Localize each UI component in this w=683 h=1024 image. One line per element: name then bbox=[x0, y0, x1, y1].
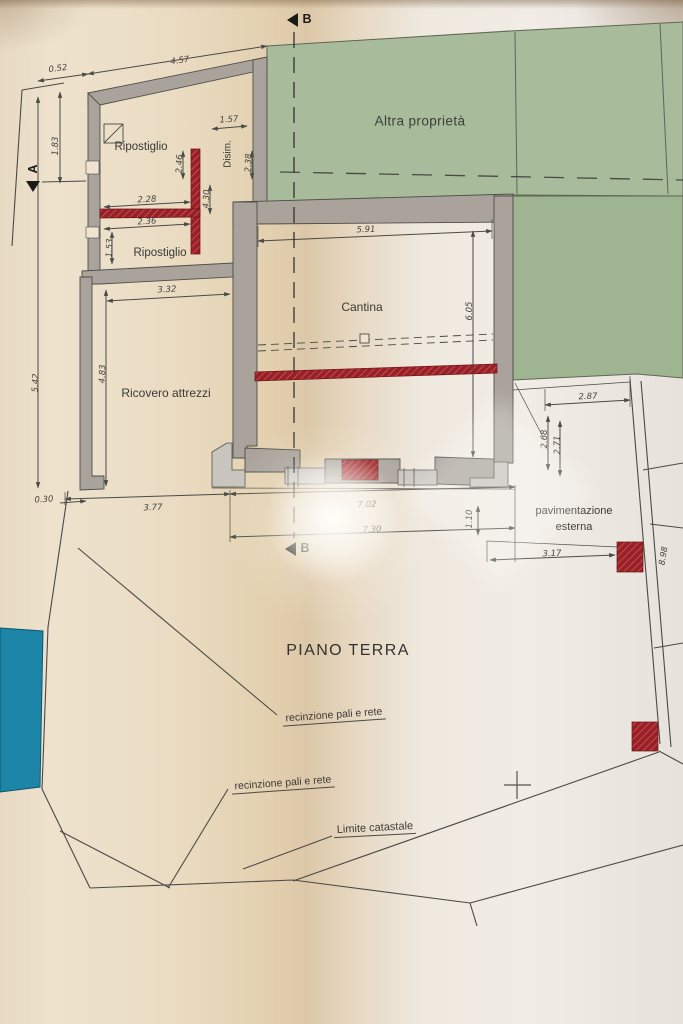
wall-cantina-left bbox=[233, 202, 257, 458]
dim-3-17: 3.17 bbox=[542, 549, 561, 560]
teal-rectangle bbox=[0, 628, 43, 792]
dim-1-57: 1.57 bbox=[219, 114, 239, 125]
bottom-boundary bbox=[90, 880, 470, 903]
dim-2-87: 2.87 bbox=[578, 392, 597, 403]
paving-line-1: pavimentazione bbox=[535, 505, 612, 517]
cadastral-diagonal bbox=[293, 752, 659, 881]
dim-2-68: 2.68 bbox=[540, 430, 550, 449]
wall-left-ricovero bbox=[80, 277, 104, 490]
cantina-small-square bbox=[360, 334, 369, 343]
red-door-block bbox=[342, 460, 378, 480]
dim-2-46: 2.46 bbox=[175, 154, 186, 173]
page-title: PIANO TERRA bbox=[286, 642, 410, 660]
dim-2-38: 2.38 bbox=[244, 153, 255, 172]
dim-0-30: 0.30 bbox=[34, 495, 53, 506]
section-b-top-arrow bbox=[287, 13, 298, 27]
area-label-paving: pavimentazioneesterna bbox=[535, 504, 612, 536]
dim-1-53: 1.53 bbox=[105, 238, 116, 257]
limite-leader bbox=[243, 836, 332, 869]
section-marker-a: A bbox=[26, 164, 40, 173]
survey-cross bbox=[504, 771, 531, 799]
dim-3-77: 3.77 bbox=[143, 503, 162, 514]
cantina-dashed-line-2 bbox=[258, 340, 493, 351]
dim-7-30: 7.30 bbox=[362, 525, 381, 536]
wall-cantina-right bbox=[494, 196, 513, 463]
area-label-other-property: Altra proprietà bbox=[375, 114, 466, 129]
dim-2-28: 2.28 bbox=[137, 195, 156, 206]
wall-left-a bbox=[88, 93, 100, 277]
dim-5-91: 5.91 bbox=[356, 225, 375, 236]
room-label-ricovero: Ricovero attrezzi bbox=[121, 386, 210, 400]
wall-right-a bbox=[253, 57, 267, 206]
dim-7-02: 7.02 bbox=[357, 500, 376, 511]
paving-line-2: esterna bbox=[556, 521, 593, 533]
dim-4-30: 4.30 bbox=[202, 189, 213, 208]
room-label-cantina: Cantina bbox=[341, 300, 382, 314]
section-b-bottom-arrow bbox=[285, 542, 296, 556]
red-wall-vertical bbox=[191, 149, 200, 254]
dim-4-83: 4.83 bbox=[98, 364, 109, 383]
wall-notch bbox=[86, 161, 99, 174]
dim-1-83: 1.83 bbox=[51, 137, 61, 156]
cantina-dashed-line-1 bbox=[258, 334, 493, 345]
room-label-ripostiglio-top: Ripostiglio bbox=[114, 141, 167, 153]
red-square-right-2 bbox=[632, 722, 658, 751]
plinth-mid-1 bbox=[285, 468, 325, 484]
dim-5-42: 5.42 bbox=[31, 373, 42, 392]
room-label-ripostiglio-lower: Ripostiglio bbox=[133, 247, 186, 259]
wall-mid-horizontal bbox=[82, 263, 233, 284]
section-marker-b-top: B bbox=[302, 12, 311, 26]
red-square-right-1 bbox=[617, 542, 643, 572]
red-stripe-cantina bbox=[255, 364, 497, 381]
room-label-disimpegno: Disim. bbox=[223, 140, 234, 168]
dim-1-10: 1.10 bbox=[465, 510, 475, 529]
fence-leader-2 bbox=[168, 789, 228, 888]
floor-plan-photo: PIANO TERRA Altra proprietà Ripostiglio … bbox=[0, 0, 683, 1024]
dim-2-36: 2.36 bbox=[137, 217, 156, 228]
green-top-strip bbox=[267, 22, 683, 205]
left-boundary bbox=[42, 491, 90, 888]
wall-notch bbox=[86, 227, 99, 238]
dim-3-32: 3.32 bbox=[157, 285, 176, 296]
dim-6-05: 6.05 bbox=[465, 302, 475, 321]
fence-leader-1 bbox=[78, 548, 277, 715]
section-marker-b-bottom: B bbox=[300, 541, 309, 555]
dim-2-71: 2.71 bbox=[553, 436, 563, 455]
green-right-block bbox=[513, 196, 683, 380]
